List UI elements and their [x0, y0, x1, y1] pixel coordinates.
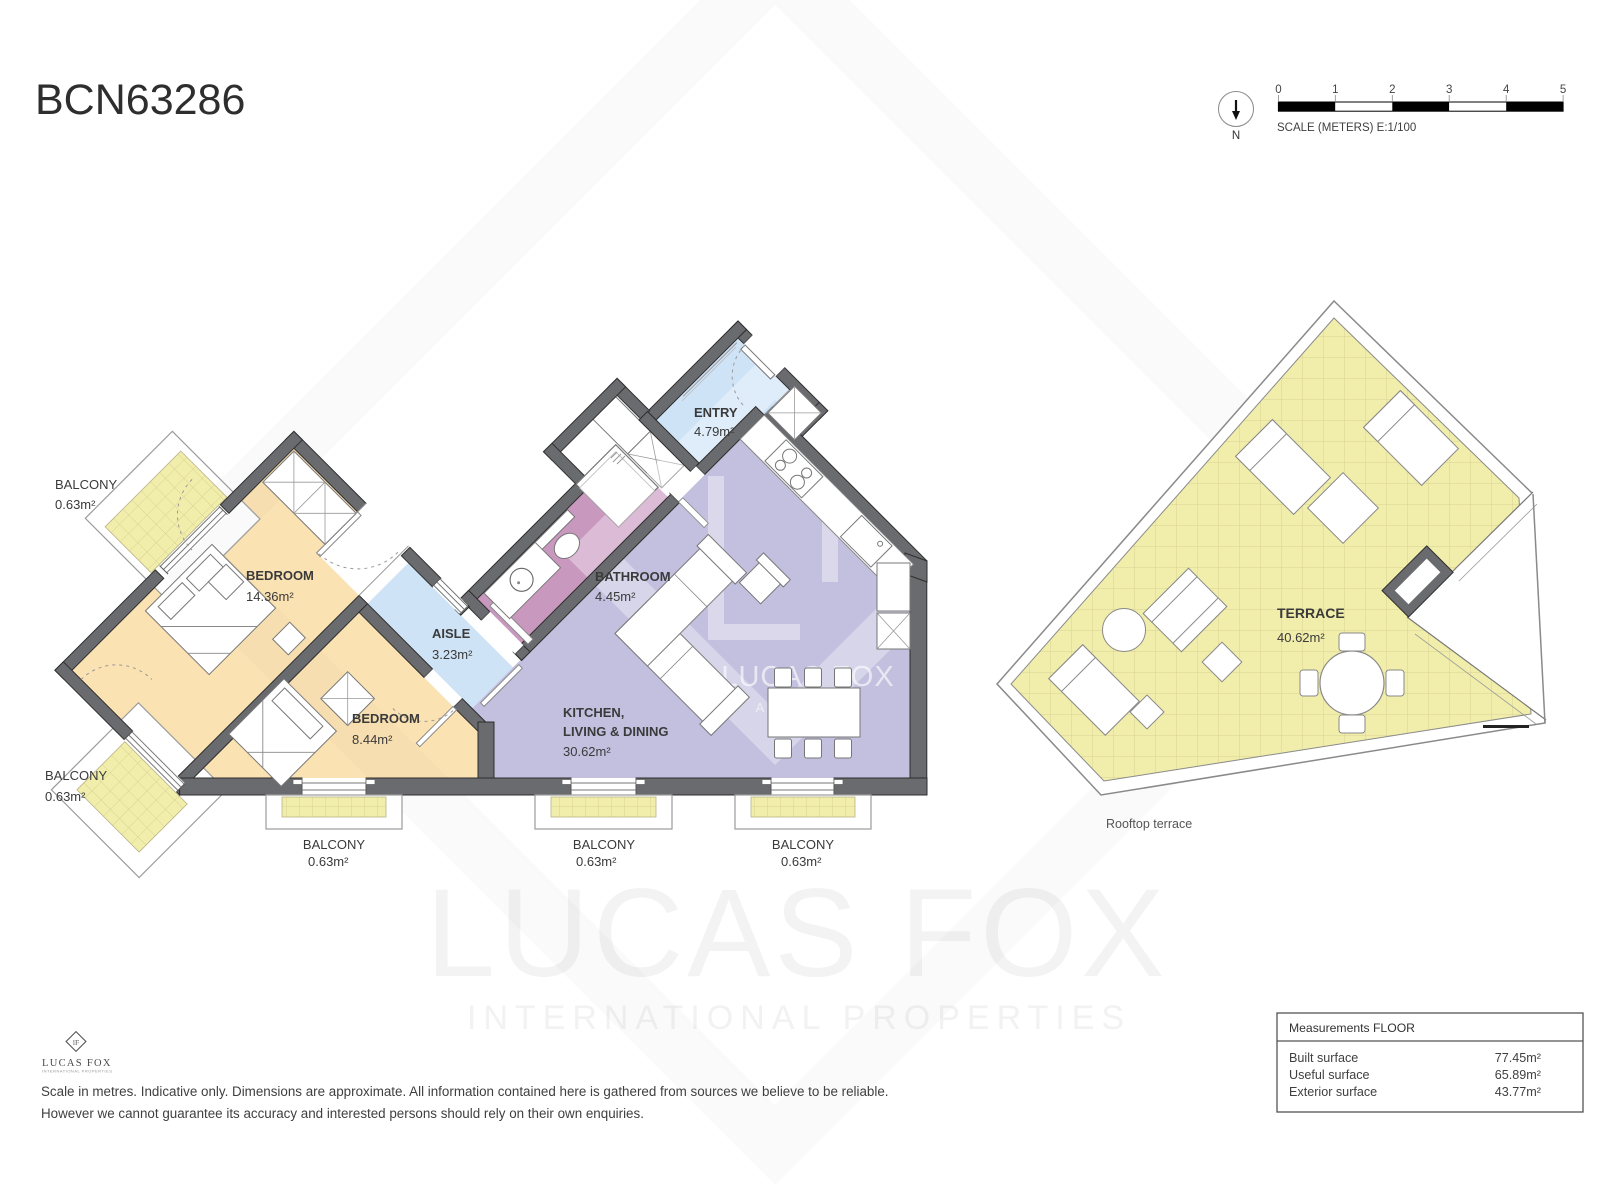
svg-text:BALCONY: BALCONY	[772, 837, 834, 852]
svg-text:0.63m²: 0.63m²	[308, 854, 349, 869]
svg-text:Scale in metres. Indicative on: Scale in metres. Indicative only. Dimens…	[41, 1084, 889, 1099]
svg-text:40.62m²: 40.62m²	[1277, 630, 1325, 645]
svg-text:1: 1	[1332, 84, 1338, 96]
svg-text:BALCONY: BALCONY	[573, 837, 635, 852]
svg-text:BEDROOM: BEDROOM	[246, 568, 314, 583]
svg-text:65.89m²: 65.89m²	[1495, 1068, 1541, 1082]
svg-text:Exterior surface: Exterior surface	[1289, 1085, 1377, 1099]
svg-text:4.79m²: 4.79m²	[694, 424, 735, 439]
svg-text:30.62m²: 30.62m²	[563, 744, 611, 759]
svg-text:3.23m²: 3.23m²	[432, 647, 473, 662]
svg-text:Built surface: Built surface	[1289, 1051, 1358, 1065]
svg-text:INTERNATIONAL PROPERTIES: INTERNATIONAL PROPERTIES	[467, 999, 1131, 1037]
svg-text:0: 0	[1275, 84, 1281, 96]
svg-text:A: A	[756, 700, 765, 715]
svg-text:LUCAS FOX: LUCAS FOX	[42, 1058, 112, 1069]
svg-text:BALCONY: BALCONY	[45, 768, 107, 783]
svg-text:N: N	[1232, 130, 1240, 142]
svg-text:14.36m²: 14.36m²	[246, 589, 294, 604]
svg-text:2: 2	[1389, 84, 1395, 96]
svg-text:SCALE (METERS) E:1/100: SCALE (METERS) E:1/100	[1277, 122, 1416, 134]
svg-text:4.45m²: 4.45m²	[595, 589, 636, 604]
svg-text:However we cannot guarantee it: However we cannot guarantee its accuracy…	[41, 1106, 644, 1121]
svg-text:0.63m²: 0.63m²	[55, 497, 96, 512]
svg-text:4: 4	[1503, 84, 1510, 96]
svg-text:AISLE: AISLE	[432, 626, 471, 641]
svg-text:0.63m²: 0.63m²	[45, 789, 86, 804]
svg-text:BEDROOM: BEDROOM	[352, 711, 420, 726]
svg-text:BALCONY: BALCONY	[303, 837, 365, 852]
svg-text:77.45m²: 77.45m²	[1495, 1051, 1541, 1065]
svg-text:3: 3	[1446, 84, 1452, 96]
svg-text:5: 5	[1560, 84, 1566, 96]
svg-text:Measurements FLOOR: Measurements FLOOR	[1289, 1021, 1415, 1035]
svg-text:KITCHEN,: KITCHEN,	[563, 705, 624, 720]
svg-text:INTERNATIONAL PROPERTIES: INTERNATIONAL PROPERTIES	[42, 1069, 112, 1074]
svg-text:BALCONY: BALCONY	[55, 477, 117, 492]
svg-text:0.63m²: 0.63m²	[576, 854, 617, 869]
svg-text:lF: lF	[73, 1038, 79, 1047]
svg-text:BCN63286: BCN63286	[35, 76, 245, 124]
svg-text:Rooftop terrace: Rooftop terrace	[1106, 817, 1192, 831]
svg-text:LIVING & DINING: LIVING & DINING	[563, 724, 668, 739]
svg-text:8.44m²: 8.44m²	[352, 732, 393, 747]
svg-text:ENTRY: ENTRY	[694, 405, 738, 420]
svg-text:BATHROOM: BATHROOM	[595, 569, 671, 584]
svg-text:Useful surface: Useful surface	[1289, 1068, 1370, 1082]
svg-text:43.77m²: 43.77m²	[1495, 1085, 1541, 1099]
svg-text:0.63m²: 0.63m²	[781, 854, 822, 869]
svg-text:TERRACE: TERRACE	[1277, 605, 1345, 621]
